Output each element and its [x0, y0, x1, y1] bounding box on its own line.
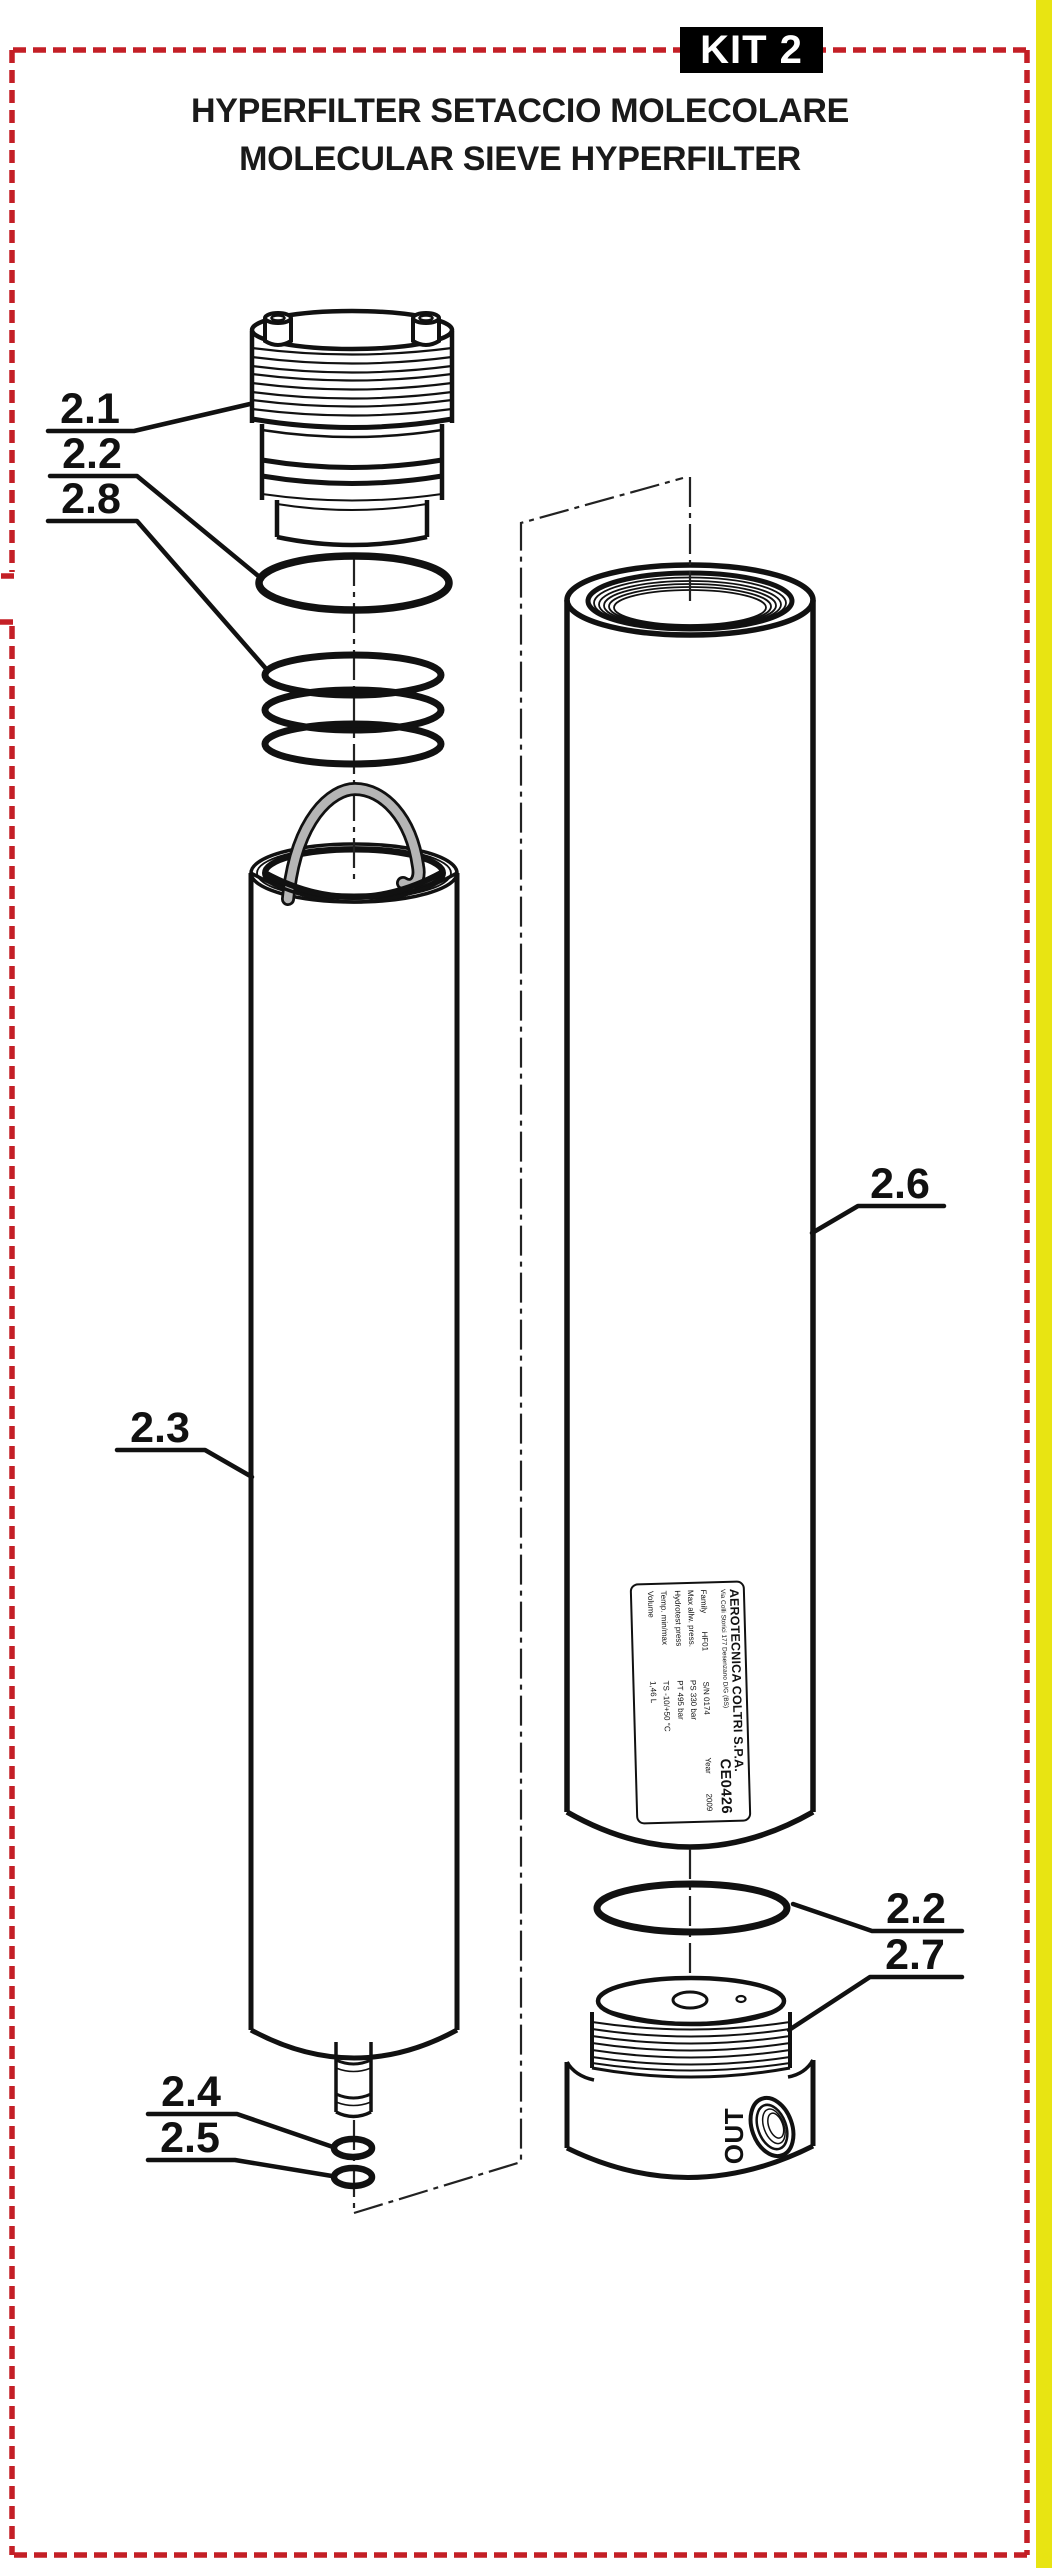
callout-end-cap: 2.7: [866, 1934, 964, 1977]
page-title-italian: HYPERFILTER SETACCIO MOLECOLARE: [13, 92, 1027, 130]
max-press-label: Max allw. press.: [683, 1590, 699, 1680]
family-value: HF01: [698, 1631, 713, 1681]
callout-bottom-oring: 2.2: [868, 1888, 964, 1931]
nameplate-body: AEROTECNICA COLTRI S.P.A. Via Colli Stor…: [630, 1580, 752, 1824]
out-port-label: OUT: [722, 2106, 746, 2166]
stem-drawing: [251, 2030, 457, 2117]
volume-label: Volume: [644, 1591, 660, 1681]
hydrotest-value: PT 495 bar: [673, 1680, 687, 1720]
manual-page: KIT 2 HYPERFILTER SETACCIO MOLECOLARE MO…: [0, 0, 1052, 2568]
max-press-value: PS 330 bar: [686, 1680, 700, 1720]
year-label: Year: [701, 1757, 715, 1793]
callout-top-cap: 2.1: [44, 388, 136, 431]
page-title-english: MOLECULAR SIEVE HYPERFILTER: [13, 140, 1027, 178]
callout-stem-oring-lower: 2.5: [144, 2117, 236, 2160]
exploded-view-drawing: [0, 0, 1052, 2568]
callout-housing: 2.6: [854, 1163, 946, 1206]
cartridge-body-drawing: [251, 844, 457, 2058]
nameplate: AEROTECNICA COLTRI S.P.A. Via Colli Stor…: [630, 1580, 752, 1824]
top-cap-drawing: [252, 311, 452, 546]
temp-value: TS -10/+50 °C: [660, 1680, 675, 1731]
leader-lines: [48, 404, 962, 2176]
end-cap-drawing: [567, 1884, 813, 2178]
callout-stem-oring-upper: 2.4: [144, 2071, 238, 2114]
callout-cartridge: 2.3: [113, 1407, 207, 1450]
serial-number: S/N 0174: [699, 1681, 714, 1757]
callout-spring: 2.8: [44, 478, 138, 521]
kit-badge: KIT 2: [680, 27, 823, 73]
callout-top-oring: 2.2: [46, 433, 138, 476]
volume-value: 1,46 L: [646, 1681, 660, 1704]
family-label: Family: [697, 1589, 711, 1631]
hydrotest-label: Hydrotest press: [670, 1590, 686, 1680]
side-strip: [1036, 0, 1052, 2568]
year-value: 2009: [702, 1793, 716, 1811]
temp-label: Temp. min/max: [657, 1591, 673, 1681]
nameplate-ce-mark: CE0426: [717, 1758, 734, 1814]
